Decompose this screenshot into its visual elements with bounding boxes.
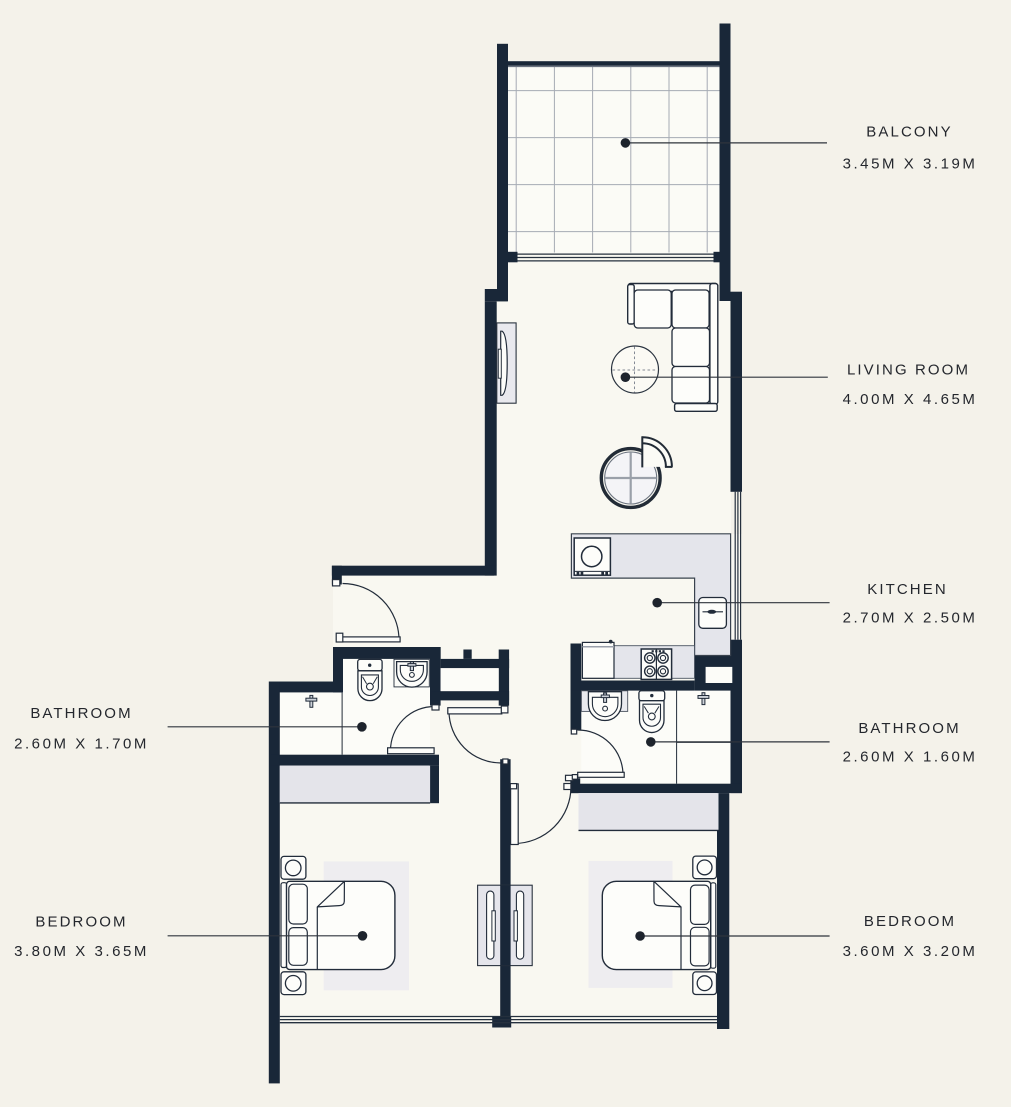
svg-text:2.60M X 1.60M: 2.60M X 1.60M xyxy=(843,749,978,766)
svg-text:4.00M X 4.65M: 4.00M X 4.65M xyxy=(843,391,978,408)
svg-text:BALCONY: BALCONY xyxy=(866,124,952,141)
svg-text:BEDROOM: BEDROOM xyxy=(864,913,956,930)
svg-text:LIVING ROOM: LIVING ROOM xyxy=(847,362,970,379)
svg-text:3.60M X 3.20M: 3.60M X 3.20M xyxy=(843,943,978,960)
svg-text:2.70M X 2.50M: 2.70M X 2.50M xyxy=(843,610,978,627)
svg-text:2.60M X 1.70M: 2.60M X 1.70M xyxy=(14,736,149,753)
svg-text:BATHROOM: BATHROOM xyxy=(30,705,132,722)
svg-text:3.80M X 3.65M: 3.80M X 3.65M xyxy=(14,943,149,960)
svg-text:3.45M X 3.19M: 3.45M X 3.19M xyxy=(843,156,978,173)
svg-text:BATHROOM: BATHROOM xyxy=(858,720,960,737)
svg-text:KITCHEN: KITCHEN xyxy=(867,581,948,598)
svg-text:BEDROOM: BEDROOM xyxy=(35,914,127,931)
